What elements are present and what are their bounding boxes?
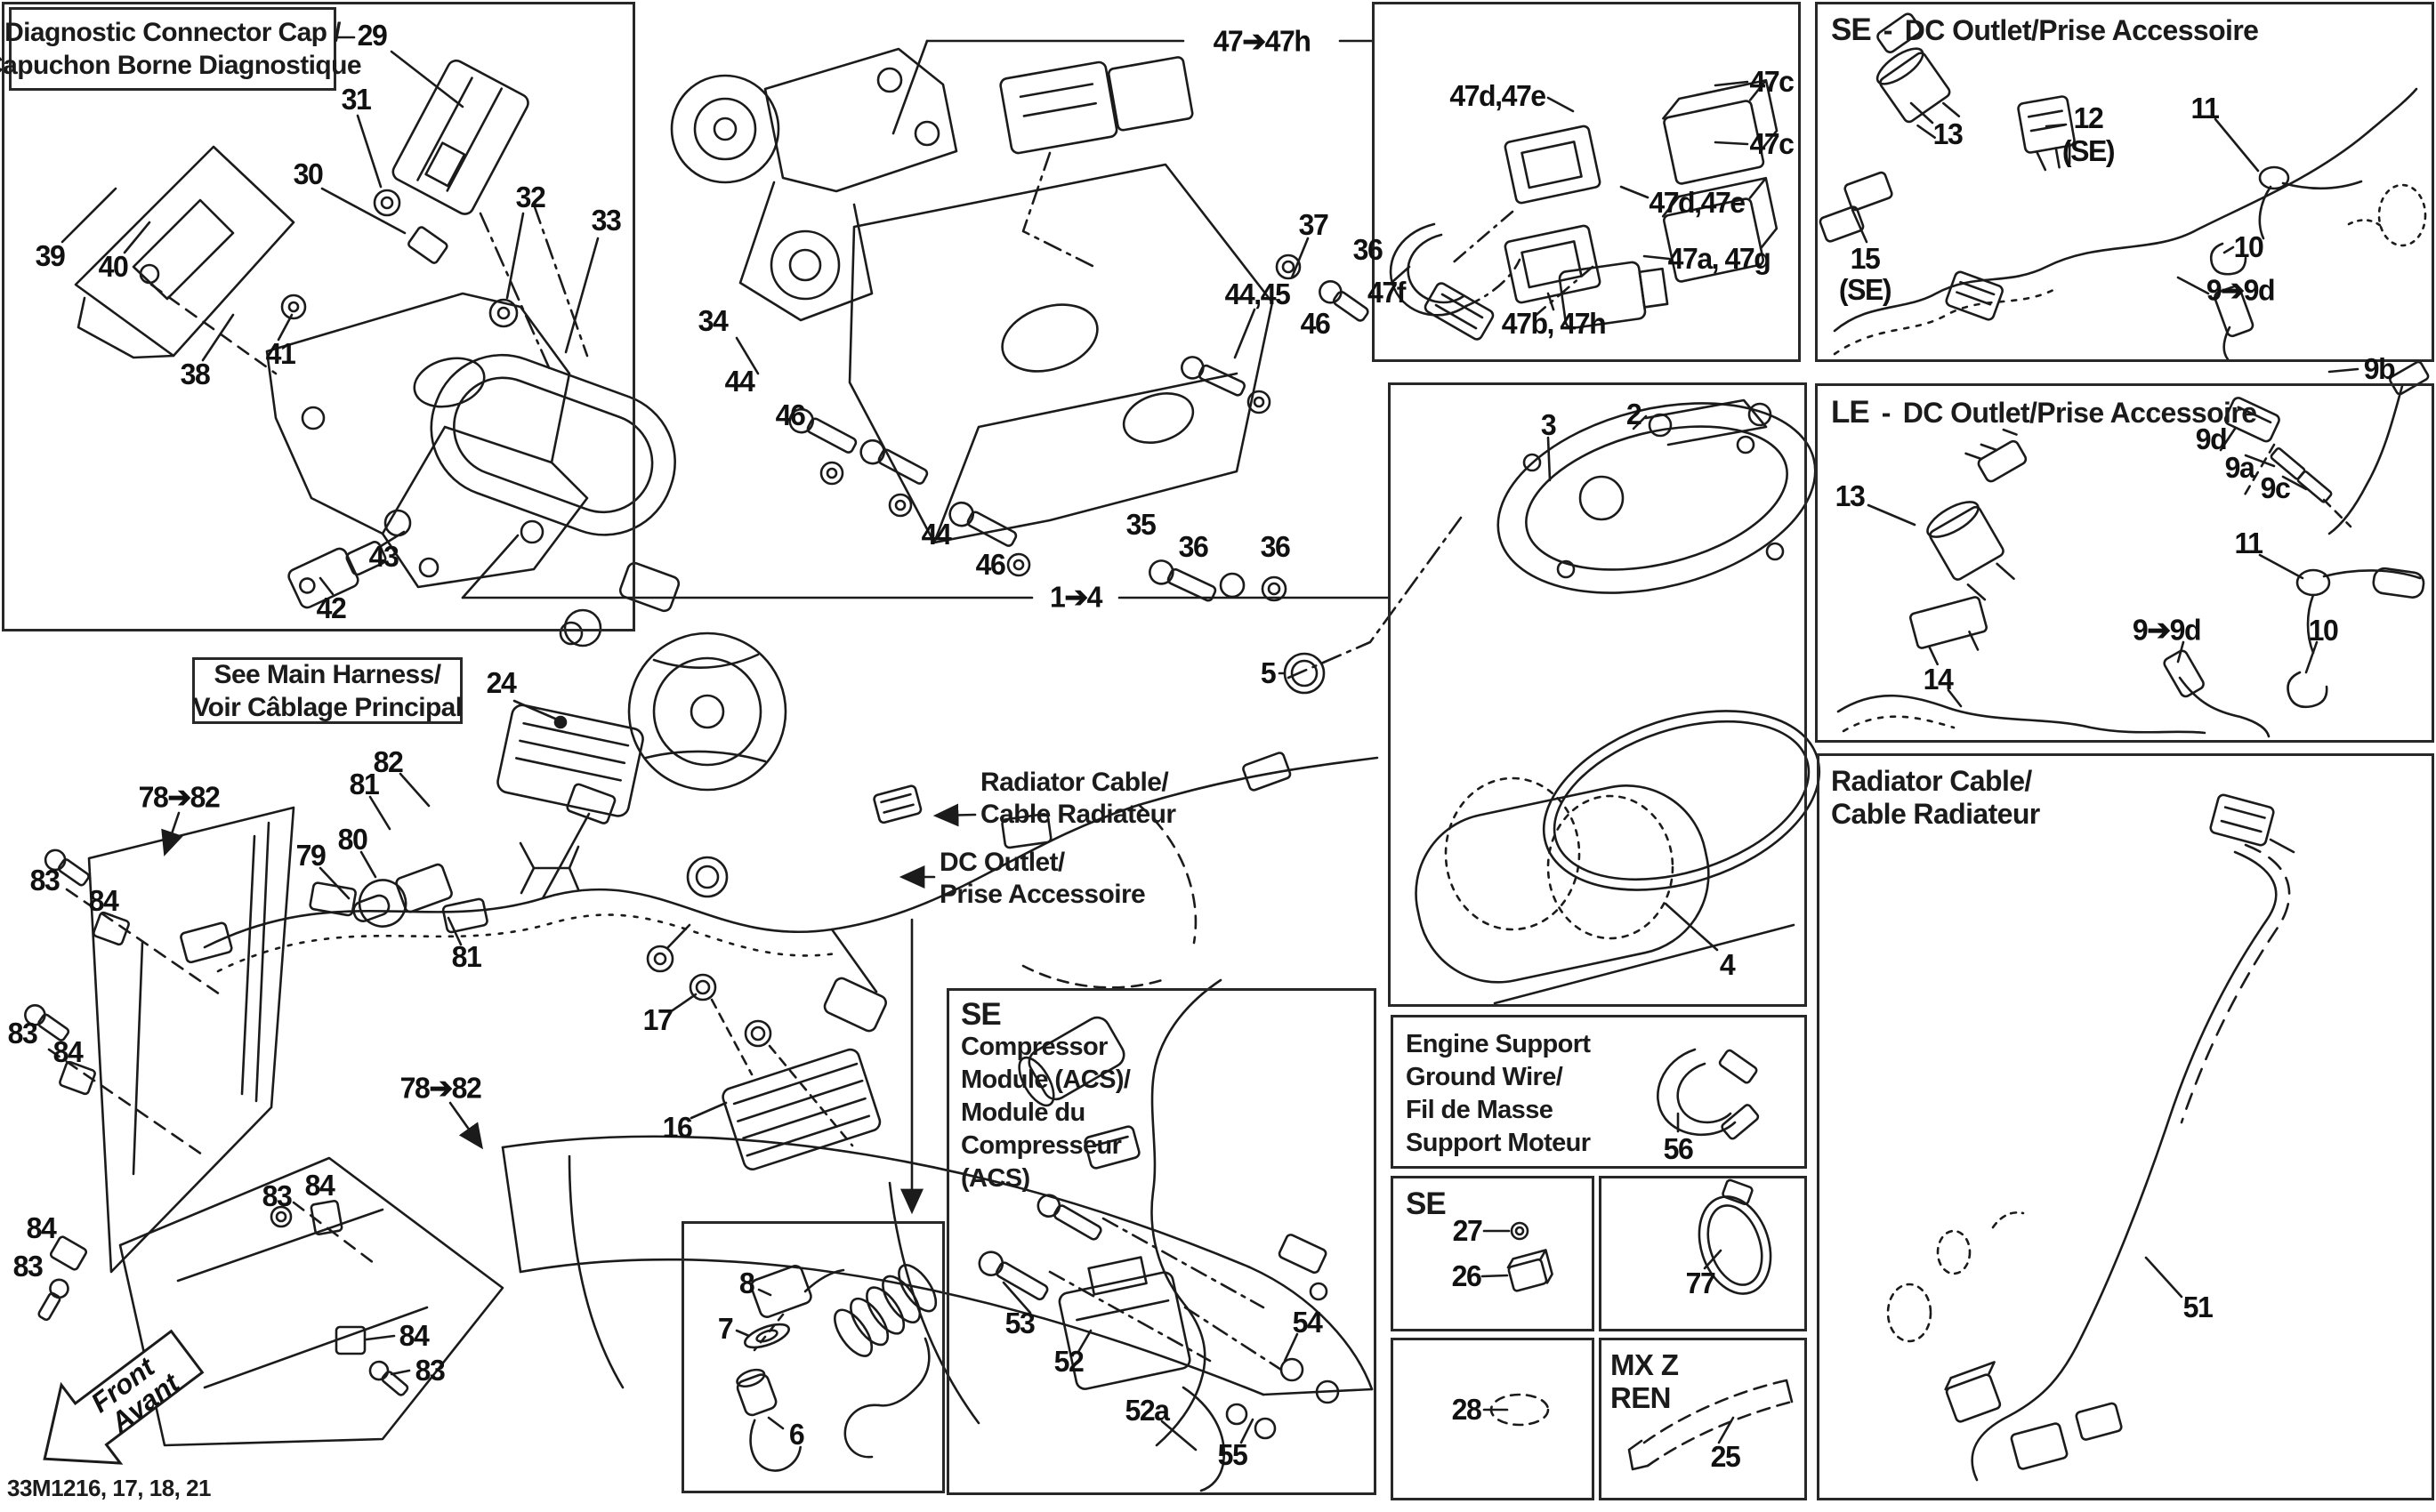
callout-83: 83: [30, 864, 60, 897]
parts-diagram-page: Front Avant Diagnostic Connector Cap / C…: [0, 0, 2436, 1512]
callout-47f: 47f: [1367, 276, 1405, 310]
box-seal-28: [1391, 1338, 1594, 1500]
callout-40: 40: [99, 250, 128, 284]
callout-84: 84: [305, 1169, 335, 1202]
callout-80: 80: [338, 823, 367, 857]
callout-4: 4: [1720, 948, 1734, 982]
callout-27: 27: [1453, 1214, 1482, 1248]
label-radiator-cable-pointer: Radiator Cable/ Cable Radiateur: [980, 767, 1175, 831]
callout-47c: 47c: [1749, 65, 1793, 99]
callout-46: 46: [776, 398, 805, 432]
callout-81: 81: [350, 768, 379, 801]
callout-33: 33: [592, 204, 621, 237]
panel-gauge-cluster: [1388, 382, 1807, 1007]
callout-12: 12: [2074, 101, 2103, 135]
label-dc-outlet-pointer: DC Outlet/ Prise Accessoire: [940, 847, 1145, 911]
header-mxz-ren: MX ZREN: [1610, 1348, 1678, 1414]
label-line: See Main Harness/: [214, 658, 441, 691]
callout-1-4: 1➔4: [1050, 580, 1101, 615]
callout-39: 39: [36, 239, 65, 273]
callout-53: 53: [1005, 1307, 1035, 1340]
callout-17: 17: [643, 1003, 673, 1037]
callout-46: 46: [976, 548, 1005, 582]
section-diagnostic-connector: [2, 2, 635, 631]
callout-44: 44: [725, 365, 754, 398]
callout-36: 36: [1179, 530, 1208, 564]
callout-51: 51: [2183, 1291, 2213, 1324]
callout-47b-47h: 47b, 47h: [1502, 307, 1605, 341]
callout-29: 29: [358, 19, 387, 52]
callout-52a: 52a: [1125, 1394, 1168, 1428]
callout-9b: 9b: [2364, 352, 2394, 386]
callout-42: 42: [317, 591, 346, 625]
label-see-main-harness: See Main Harness/ Voir Câblage Principal: [192, 657, 463, 724]
header-engine-ground-wire: Engine SupportGround Wire/ Fil de MasseS…: [1406, 1028, 1590, 1160]
callout-31: 31: [342, 83, 371, 117]
header-le-dc-outlet: LE-DC Outlet/Prise Accessoire: [1831, 395, 2256, 430]
callout-78-82: 78➔82: [400, 1071, 481, 1106]
callout-3: 3: [1541, 408, 1555, 442]
label-line: Voir Câblage Principal: [193, 691, 463, 724]
callout-6: 6: [789, 1418, 803, 1452]
callout-11: 11: [2191, 92, 2219, 125]
callout-se: (SE): [1839, 273, 1891, 307]
callout-54: 54: [1293, 1306, 1322, 1339]
callout-83: 83: [8, 1017, 37, 1050]
callout-26: 26: [1452, 1259, 1481, 1293]
callout-32: 32: [516, 181, 545, 214]
callout-43: 43: [369, 540, 399, 574]
callout-9-9d: 9➔9d: [2133, 613, 2200, 647]
callout-7: 7: [718, 1312, 732, 1346]
callout-25: 25: [1711, 1440, 1740, 1474]
callout-38: 38: [181, 358, 210, 391]
callout-77: 77: [1686, 1267, 1715, 1300]
callout-5: 5: [1261, 656, 1275, 690]
callout-37: 37: [1299, 208, 1328, 242]
callout-47d-47e: 47d,47e: [1649, 186, 1744, 220]
callout-10: 10: [2309, 614, 2338, 647]
callout-47d-47e: 47d,47e: [1449, 79, 1545, 113]
callout-24: 24: [487, 666, 516, 700]
header-radiator-cable: Radiator Cable/Cable Radiateur: [1831, 765, 2040, 831]
callout-34: 34: [698, 304, 728, 338]
callout-46: 46: [1301, 307, 1330, 341]
callout-83: 83: [415, 1354, 445, 1387]
panel-se-dc-outlet: [1815, 2, 2434, 362]
callout-9-9d: 9➔9d: [2206, 273, 2274, 308]
panel-le-dc-outlet: [1815, 383, 2434, 743]
callout-47a-47g: 47a, 47g: [1668, 242, 1771, 276]
box-tether-cord: [682, 1221, 945, 1493]
header-se-dc-outlet: SE-DC Outlet/Prise Accessoire: [1831, 12, 2258, 48]
callout-79: 79: [296, 839, 326, 873]
callout-83: 83: [13, 1250, 43, 1283]
callout-9d: 9d: [2196, 422, 2226, 456]
label-diagnostic-connector-cap: Diagnostic Connector Cap / Capuchon Born…: [9, 7, 336, 91]
front-direction-arrow: Front Avant: [15, 1313, 216, 1498]
callout-36: 36: [1261, 530, 1290, 564]
callout-55: 55: [1218, 1438, 1247, 1472]
label-line: Capuchon Borne Diagnostique: [0, 49, 361, 82]
callout-30: 30: [294, 157, 323, 191]
callout-84: 84: [27, 1211, 56, 1245]
callout-se: (SE): [2062, 134, 2114, 168]
callout-2: 2: [1626, 398, 1641, 431]
header-se-accessory: SE: [1406, 1186, 1446, 1222]
label-line: Diagnostic Connector Cap /: [4, 16, 341, 49]
callout-47c: 47c: [1749, 127, 1793, 161]
callout-9a: 9a: [2225, 451, 2255, 485]
callout-84: 84: [399, 1319, 429, 1353]
callout-8: 8: [739, 1267, 754, 1300]
callout-44-45: 44,45: [1225, 277, 1290, 311]
box-retainer-77: [1599, 1176, 1807, 1331]
panel-radiator-cable: [1817, 753, 2434, 1500]
callout-78-82: 78➔82: [139, 780, 220, 815]
callout-13: 13: [1835, 479, 1865, 513]
callout-14: 14: [1924, 663, 1953, 696]
callout-10: 10: [2234, 230, 2263, 264]
callout-36: 36: [1353, 233, 1383, 267]
callout-11: 11: [2235, 527, 2263, 560]
callout-16: 16: [663, 1111, 692, 1145]
callout-56: 56: [1664, 1132, 1693, 1166]
callout-15: 15: [1851, 242, 1880, 276]
callout-52: 52: [1054, 1345, 1084, 1379]
callout-35: 35: [1126, 508, 1156, 542]
callout-84: 84: [53, 1035, 83, 1069]
callout-83: 83: [262, 1179, 292, 1213]
callout-13: 13: [1933, 117, 1963, 151]
callout-47-47h: 47➔47h: [1214, 24, 1311, 59]
callout-28: 28: [1452, 1393, 1481, 1427]
callout-44: 44: [922, 518, 951, 551]
callout-84: 84: [89, 884, 118, 918]
sheet-number: 33M1216, 17, 18, 21: [7, 1475, 211, 1502]
callout-9c: 9c: [2261, 471, 2290, 505]
header-compressor-module: SE CompressorModule (ACS)/ Module duComp…: [961, 998, 1130, 1195]
callout-81: 81: [452, 940, 481, 974]
callout-41: 41: [266, 337, 295, 371]
